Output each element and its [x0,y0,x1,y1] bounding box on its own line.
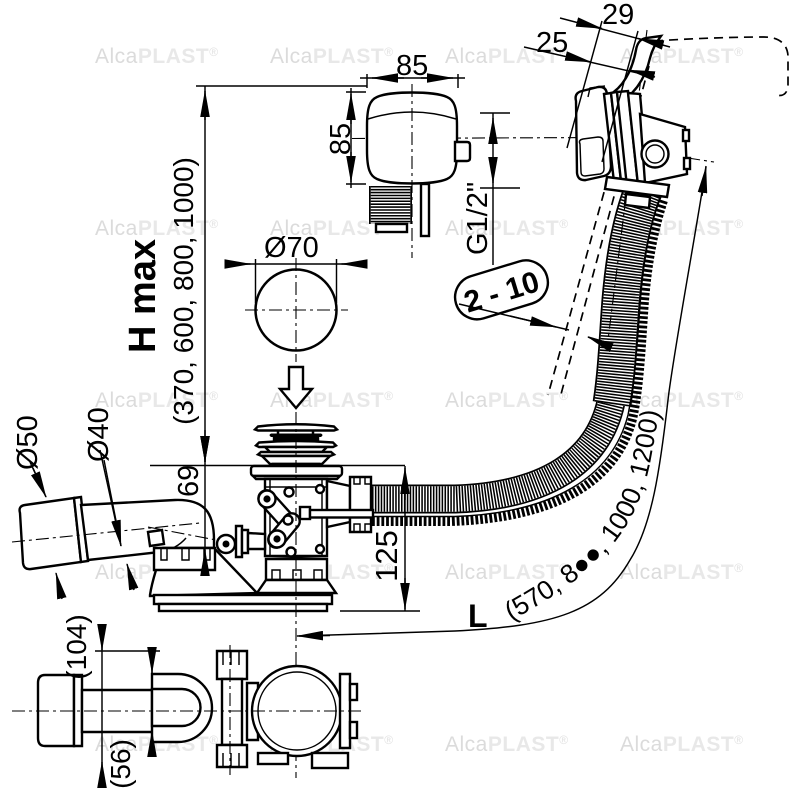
svg-text:125: 125 [369,530,404,582]
svg-text:(56): (56) [105,739,136,789]
svg-text:29: 29 [602,0,634,31]
svg-text:AlcaPLAST®: AlcaPLAST® [95,217,219,240]
svg-text:(104): (104) [61,614,92,679]
svg-text:(370, 600, 800, 1000): (370, 600, 800, 1000) [168,157,199,425]
svg-text:Ø40: Ø40 [83,407,115,462]
svg-text:69: 69 [173,465,205,497]
svg-text:H max: H max [122,239,164,353]
svg-text:L: L [468,598,488,634]
svg-text:G1/2": G1/2" [462,182,494,255]
svg-text:Ø70: Ø70 [264,232,319,264]
svg-text:85: 85 [325,123,357,155]
svg-text:Ø50: Ø50 [12,415,44,470]
svg-text:25: 25 [536,27,568,59]
svg-text:85: 85 [396,50,428,82]
